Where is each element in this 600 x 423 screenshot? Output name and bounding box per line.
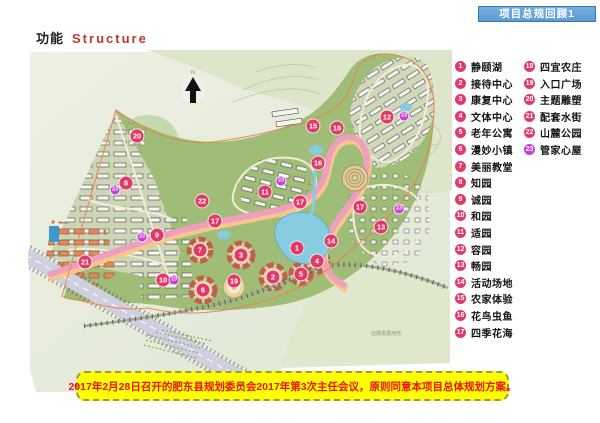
page-title: 功能Structure [36, 28, 148, 47]
map-marker-23: 23 [138, 233, 147, 242]
map-marker-23: 23 [277, 177, 286, 186]
legend-label-10: 和园 [471, 208, 492, 223]
legend-item-2: 2接待中心 [455, 78, 513, 89]
legend-marker-3: 3 [455, 94, 466, 105]
map-marker-6: 6 [197, 284, 210, 297]
legend-marker-2: 2 [455, 78, 466, 89]
legend-marker-20: 20 [524, 94, 535, 105]
legend-marker-15: 15 [455, 293, 466, 304]
map-marker-16: 16 [312, 157, 325, 170]
approval-note-text: 2017年2月28日召开的肥东县规划委员会2017年第3次主任会议，原则同意本项… [68, 379, 516, 394]
legend-column-1: 1静颐湖2接待中心3康复中心4文体中心5老年公寓6漫妙小镇7美丽教堂8知园9诚园… [455, 61, 513, 338]
map-marker-18: 18 [331, 122, 344, 135]
map-marker-13: 13 [375, 221, 388, 234]
legend-item-7: 7美丽教堂 [455, 161, 513, 172]
legend-marker-12: 12 [455, 244, 466, 255]
legend-marker-23: 23 [524, 144, 535, 155]
legend-item-3: 3康复中心 [455, 94, 513, 105]
legend-marker-11: 11 [455, 227, 466, 238]
legend-label-22: 山麓公园 [540, 125, 582, 140]
map-marker-11: 11 [259, 186, 272, 199]
legend-marker-6: 6 [455, 144, 466, 155]
map-marker-2: 2 [267, 271, 280, 284]
map-marker-17: 17 [294, 196, 307, 209]
legend-label-3: 康复中心 [471, 92, 513, 107]
map-marker-20: 20 [131, 130, 144, 143]
legend-marker-18: 18 [524, 61, 535, 72]
legend-label-9: 诚园 [471, 192, 492, 207]
master-plan-map: N 远期发展用地 1234567891011121314151617171718… [28, 50, 452, 394]
map-marker-17: 17 [209, 215, 222, 228]
legend-item-22: 22山麓公园 [524, 127, 582, 138]
legend-marker-21: 21 [524, 111, 535, 122]
legend-item-23: 23管家心屋 [524, 144, 582, 155]
legend-item-5: 5老年公寓 [455, 127, 513, 138]
legend-item-6: 6漫妙小镇 [455, 144, 513, 155]
title-en: Structure [72, 31, 148, 46]
legend-marker-13: 13 [455, 260, 466, 271]
legend-marker-14: 14 [455, 277, 466, 288]
legend-marker-22: 22 [524, 127, 535, 138]
legend-label-14: 活动场地 [471, 275, 513, 290]
legend-marker-19: 19 [524, 78, 535, 89]
approval-note: 2017年2月28日召开的肥东县规划委员会2017年第3次主任会议，原则同意本项… [76, 371, 509, 401]
legend-marker-10: 10 [455, 210, 466, 221]
map-marker-23: 23 [111, 186, 120, 195]
legend-item-12: 12容园 [455, 244, 513, 255]
legend-label-18: 四宜农庄 [540, 59, 582, 74]
legend-label-8: 知园 [471, 175, 492, 190]
legend-item-16: 16花鸟虫鱼 [455, 310, 513, 321]
legend-label-16: 花鸟虫鱼 [471, 308, 513, 323]
legend-item-20: 20主题雕塑 [524, 94, 582, 105]
map-marker-23: 23 [170, 276, 179, 285]
legend-item-10: 10和园 [455, 210, 513, 221]
legend-item-11: 11适园 [455, 227, 513, 238]
map-marker-23: 23 [400, 112, 409, 121]
map-marker-8: 8 [120, 177, 133, 190]
legend-label-11: 适园 [471, 225, 492, 240]
legend-marker-5: 5 [455, 127, 466, 138]
legend-label-5: 老年公寓 [471, 125, 513, 140]
legend-label-17: 四季花海 [471, 325, 513, 340]
map-marker-17: 17 [354, 201, 367, 214]
legend-label-4: 文体中心 [471, 109, 513, 124]
legend-label-13: 畅园 [471, 258, 492, 273]
map-marker-10: 10 [157, 274, 170, 287]
legend-item-9: 9诚园 [455, 194, 513, 205]
map-marker-7: 7 [194, 244, 207, 257]
legend-marker-7: 7 [455, 161, 466, 172]
legend-item-15: 15农家体验 [455, 293, 513, 304]
legend-marker-9: 9 [455, 194, 466, 205]
legend-item-17: 17四季花海 [455, 327, 513, 338]
map-marker-19: 19 [228, 275, 241, 288]
map-marker-4: 4 [311, 255, 324, 268]
map-marker-15: 15 [307, 120, 320, 133]
map-marker-layer: 1234567891011121314151617171718192021222… [28, 50, 452, 394]
legend-label-23: 管家心屋 [540, 142, 582, 157]
map-marker-14: 14 [325, 235, 338, 248]
legend-column-2: 18四宜农庄19入口广场20主题雕塑21配套水街22山麓公园23管家心屋 [524, 61, 582, 155]
legend-marker-1: 1 [455, 61, 466, 72]
legend-label-15: 农家体验 [471, 291, 513, 306]
legend-marker-17: 17 [455, 327, 466, 338]
map-marker-3: 3 [235, 249, 248, 262]
legend-marker-16: 16 [455, 310, 466, 321]
legend-label-6: 漫妙小镇 [471, 142, 513, 157]
legend-item-1: 1静颐湖 [455, 61, 513, 72]
legend-label-19: 入口广场 [540, 76, 582, 91]
legend-item-21: 21配套水街 [524, 111, 582, 122]
map-marker-23: 23 [395, 205, 404, 214]
map-marker-9: 9 [151, 229, 164, 242]
title-zh: 功能 [36, 31, 64, 46]
map-marker-1: 1 [291, 242, 304, 255]
legend-label-1: 静颐湖 [471, 59, 503, 74]
map-marker-12: 12 [381, 111, 394, 124]
legend-item-13: 13畅园 [455, 260, 513, 271]
legend-label-12: 容园 [471, 242, 492, 257]
legend-item-18: 18四宜农庄 [524, 61, 582, 72]
legend-label-21: 配套水街 [540, 109, 582, 124]
legend-marker-8: 8 [455, 177, 466, 188]
legend-label-20: 主题雕塑 [540, 92, 582, 107]
legend-marker-4: 4 [455, 111, 466, 122]
legend-label-7: 美丽教堂 [471, 159, 513, 174]
map-marker-5: 5 [295, 268, 308, 281]
legend-item-19: 19入口广场 [524, 78, 582, 89]
legend-label-2: 接待中心 [471, 76, 513, 91]
slide-header-badge: 项目总规回顾1 [478, 6, 596, 22]
map-marker-21: 21 [79, 256, 92, 269]
legend-item-14: 14活动场地 [455, 277, 513, 288]
legend-item-8: 8知园 [455, 177, 513, 188]
legend-item-4: 4文体中心 [455, 111, 513, 122]
map-marker-22: 22 [196, 195, 209, 208]
